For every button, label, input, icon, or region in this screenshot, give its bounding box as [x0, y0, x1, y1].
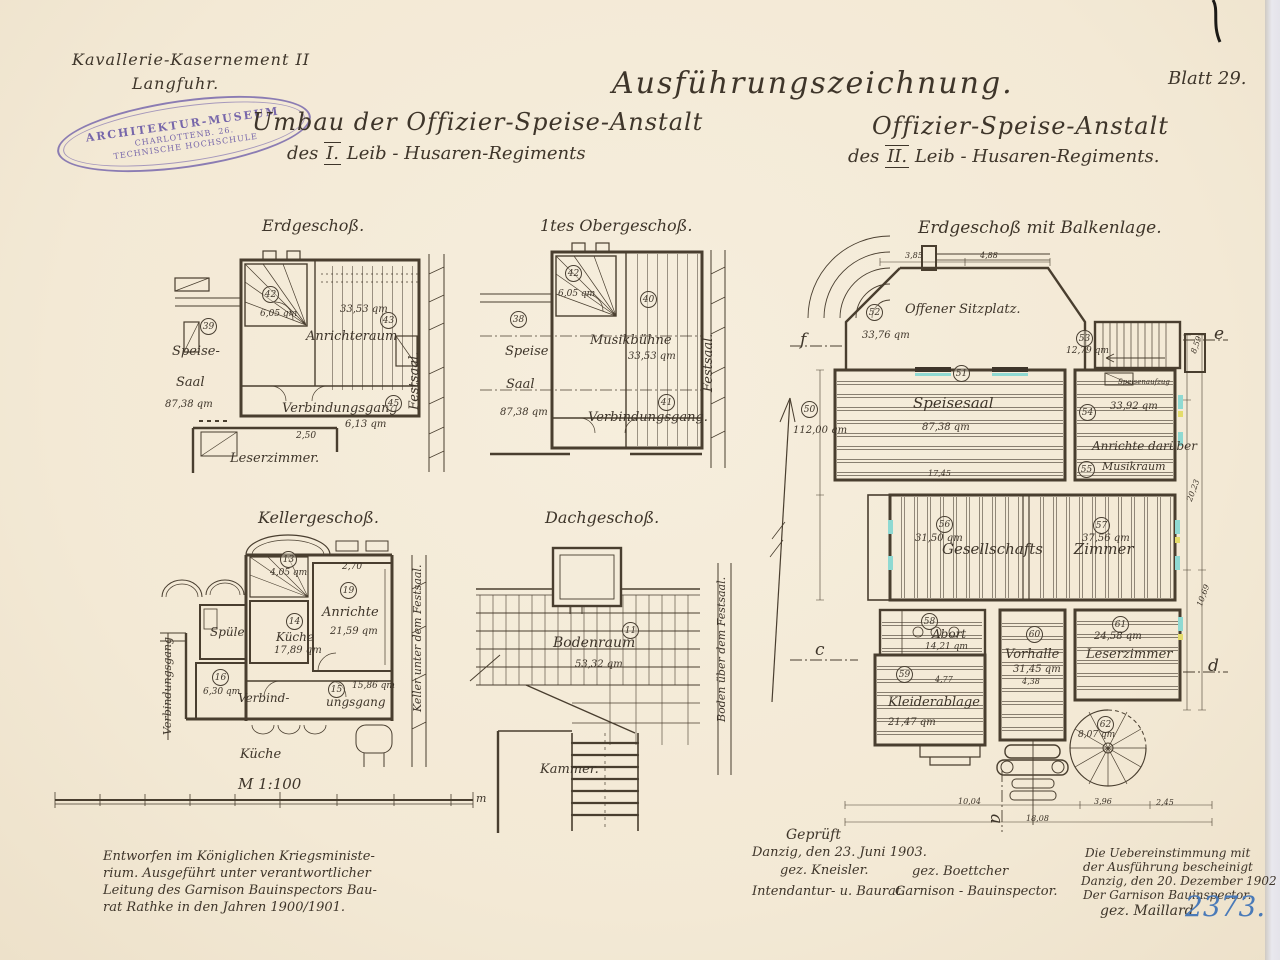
footer-left-line4: rat Rathke in den Jahren 1900/1901. [103, 901, 345, 915]
dimension: 4,77 [935, 676, 953, 684]
room-label-leserzimmer-bl: Leserzimmer [1086, 648, 1172, 662]
room-number: 19 [340, 582, 357, 599]
section-letter-f: f [800, 332, 806, 350]
dimension: 2,50 [296, 432, 316, 441]
window-mark [915, 367, 951, 372]
room-label-musikbuehne: Musikbühne [590, 334, 672, 348]
room-area: 33,53 qm [340, 305, 388, 316]
room-label-offener-sitzplatz: Offener Sitzplatz. [905, 303, 1021, 317]
room-label-spuele: Spüle [210, 626, 245, 639]
room-number: 59 [896, 666, 913, 683]
plan-title-obergeschoss: 1tes Obergeschoß. [540, 218, 692, 235]
room-area: 6,05 qm [558, 290, 595, 299]
window-mark [992, 367, 1028, 372]
window-highlight-yellow [1178, 411, 1183, 417]
room-label-kueche-unten: Küche [240, 748, 281, 762]
scale-label: M 1:100 [238, 777, 301, 793]
window-highlight-cyan [915, 373, 951, 376]
room-number: 38 [510, 311, 527, 328]
dimension: 2,70 [342, 563, 362, 572]
room-label-speisenaufzug: Speisenaufzug [1118, 379, 1170, 386]
window-highlight-yellow [1178, 634, 1183, 640]
room-area: 6,30 qm [203, 688, 240, 697]
room-number: 45 [385, 395, 402, 412]
left-title-line1: Umbau der Offizier-Speise-Anstalt [252, 110, 703, 135]
left-title-line2: des I. Leib - Husaren-Regiments [287, 145, 586, 164]
room-area: 33,53 qm [628, 352, 676, 363]
room-area: 17,89 qm [274, 646, 322, 657]
room-number: 56 [936, 516, 953, 533]
plan-title-dach: Dachgeschoß. [545, 510, 659, 527]
room-area: 24,58 qm [1094, 632, 1142, 643]
dimension: 4,88 [980, 252, 998, 260]
room-area: 21,47 qm [888, 718, 936, 729]
dimension: 3,96 [1094, 798, 1112, 806]
room-label-abort: Abort [932, 628, 966, 641]
room-area: 87,38 qm [500, 408, 548, 419]
dimension: 2,45 [1156, 799, 1174, 807]
right-title-prefix: des [848, 146, 879, 167]
room-label-verbindungsgang-kg-1: Verbind- [238, 692, 289, 705]
room-area: 12,79 qm [1066, 347, 1109, 356]
north-arrow-icon [772, 398, 790, 702]
room-label-kueche-kg: Küche [276, 631, 314, 644]
room-area: 53,32 qm [575, 660, 623, 671]
right-title-line1: Offizier-Speise-Anstalt [872, 114, 1169, 139]
role-left: Intendantur- u. Baurat. [752, 885, 905, 899]
room-area: 4,05 qm [270, 569, 307, 578]
right-title-suffix: Leib - Husaren-Regiments. [915, 146, 1160, 167]
footer-right-line2: der Ausführung bescheinigt [1083, 861, 1253, 874]
room-number: 16 [212, 669, 229, 686]
floorboards-anrichteraum [323, 266, 413, 390]
signature-right: gez. Boettcher [912, 865, 1008, 879]
drawing-type-title: Ausführungszeichnung. [612, 68, 1014, 100]
footer-checked: Geprüft [786, 828, 841, 843]
right-title-numeral: II. [885, 145, 909, 168]
room-label-kammer: Kammer. [540, 763, 599, 777]
room-label-festsaal-og: Festsaal. [702, 334, 716, 392]
room-label-verbindungsgang-vertical: Verbindungsgang [162, 637, 174, 735]
dimension: 17,45 [928, 470, 951, 478]
room-number: 55 [1078, 461, 1095, 478]
signature-left: gez. Kneisler. [780, 864, 869, 878]
room-label-speisesaal-og-2: Saal [506, 378, 535, 392]
archive-number: 2373. [1185, 890, 1265, 923]
room-label-verbindungsgang-og: Verbindungsgang. [588, 411, 708, 425]
left-title-prefix: des [287, 143, 318, 164]
room-area: 21,59 qm [330, 627, 378, 638]
room-label-musikraum: Musikraum [1102, 461, 1166, 473]
room-number: 39 [200, 318, 217, 335]
room-label-keller-unter-festsaal: Keller unter dem Festsaal. [412, 565, 424, 712]
window-highlight-yellow [1175, 537, 1180, 543]
room-number: 53 [1076, 330, 1093, 347]
room-area: 33,76 qm [862, 331, 910, 342]
room-area: 6,05 qm [260, 310, 297, 319]
dimension: 4,38 [1022, 678, 1040, 686]
window-highlight-cyan [888, 556, 893, 570]
room-area: 8,07 qm [1078, 731, 1115, 740]
window-highlight-cyan [992, 373, 1028, 376]
room-area: 37,56 qm [1082, 534, 1130, 545]
footer-left-line2: rium. Ausgeführt unter verantwortlicher [103, 867, 371, 881]
footer-right-line1: Die Uebereinstimmung mit [1085, 847, 1250, 860]
plan-title-balkenlage: Erdgeschoß mit Balkenlage. [918, 220, 1162, 238]
room-label-leserzimmer-eg: Leserzimmer. [230, 452, 319, 466]
room-area: 87,38 qm [165, 400, 213, 411]
room-number: 43 [380, 312, 397, 329]
dimension: 3,85 [905, 252, 923, 260]
room-label-festsaal-eg: Festsaal. [408, 352, 422, 410]
plan-title-keller: Kellergeschoß. [258, 510, 379, 527]
room-area: 6,13 qm [345, 420, 386, 431]
room-label-anrichteraum: Anrichteraum [306, 330, 397, 344]
room-number: 13 [280, 551, 297, 568]
role-right: Garnison - Bauinspector. [895, 885, 1058, 899]
pen-mark [1205, 0, 1235, 46]
scan-edge [1265, 0, 1280, 960]
room-area: 31,45 qm [1013, 665, 1061, 676]
room-number: 42 [565, 265, 582, 282]
footer-right-signature: gez. Maillard [1100, 904, 1194, 919]
section-letter-e: e [1214, 326, 1224, 344]
room-label-bodenraum: Bodenraum [553, 636, 635, 651]
plan-title-erdgeschoss: Erdgeschoß. [262, 218, 364, 235]
room-number: 60 [1026, 626, 1043, 643]
room-area: 33,92 qm [1110, 402, 1158, 413]
site-place: Langfuhr. [132, 76, 219, 93]
room-label-anrichte-kg: Anrichte [322, 606, 379, 620]
window-highlight-cyan [1175, 520, 1180, 534]
window-highlight-cyan [888, 520, 893, 534]
section-letter-d: d [1208, 658, 1219, 676]
section-letter-a: a [986, 814, 1004, 824]
right-title-line2: des II. Leib - Husaren-Regiments. [848, 148, 1159, 167]
room-area: 112,00 qm [793, 426, 847, 437]
room-number: 51 [953, 365, 970, 382]
room-number: 57 [1093, 517, 1110, 534]
room-label-anrichte-darueber: Anrichte darüber [1092, 440, 1197, 453]
room-area: 87,38 qm [922, 423, 970, 434]
room-label-speisesaal-bl: Speisesaal [913, 396, 994, 412]
drawing-sheet: Kavallerie-Kasernement II Langfuhr. ARCH… [0, 0, 1280, 960]
room-label-vorhalle: Vorhalle [1005, 648, 1059, 662]
footer-place-date: Danzig, den 23. Juni 1903. [752, 846, 927, 860]
dimension: 10,04 [958, 798, 981, 806]
room-label-verbindungsgang-eg: Verbindungsgang [282, 402, 398, 416]
room-label-speisesaal-eg-2: Saal [176, 376, 205, 390]
site-name: Kavallerie-Kasernement II [72, 52, 310, 69]
room-label-speisesaal-eg-1: Speise- [172, 345, 220, 359]
window-highlight-cyan [1175, 556, 1180, 570]
room-number: 52 [866, 304, 883, 321]
room-label-boden-ueber-festsaal: Boden über dem Festsaal. [716, 577, 728, 722]
room-number: 54 [1079, 404, 1096, 421]
left-title-numeral: I. [324, 142, 341, 165]
room-number: 14 [286, 613, 303, 630]
room-number: 41 [658, 394, 675, 411]
window-highlight-cyan [1178, 617, 1183, 631]
footer-left-line1: Entworfen im Königlichen Kriegsministe- [103, 850, 375, 864]
sheet-number: Blatt 29. [1168, 70, 1247, 89]
section-letter-c: c [815, 642, 825, 660]
room-number: 50 [801, 401, 818, 418]
room-number: 42 [262, 286, 279, 303]
footer-left-line3: Leitung des Garnison Bauinspectors Bau- [103, 884, 377, 898]
room-number: 40 [640, 291, 657, 308]
left-title-suffix: Leib - Husaren-Regiments [347, 143, 586, 164]
room-label-verbindungsgang-kg-2: ungsgang [326, 696, 386, 709]
room-area: 15,86 qm [352, 682, 395, 691]
room-label-speisesaal-og-1: Speise [505, 345, 548, 359]
dimension: 18,08 [1026, 815, 1049, 823]
scale-unit: m [476, 793, 486, 805]
room-area: 14,21 qm [925, 643, 968, 652]
footer-right-line3: Danzig, den 20. Dezember 1902 [1081, 875, 1277, 888]
room-label-kleiderablage: Kleiderablage [888, 696, 980, 710]
window-highlight-cyan [1178, 395, 1183, 409]
room-area: 31,50 qm [915, 534, 963, 545]
